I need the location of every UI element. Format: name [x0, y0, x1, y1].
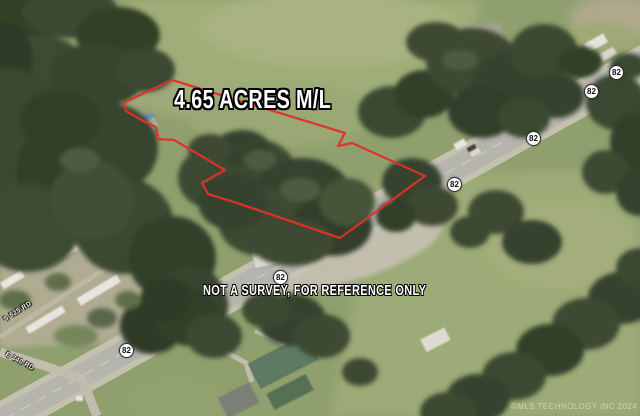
highway-route-number: 82 [529, 135, 538, 143]
highway-82-shield: 82 [447, 177, 462, 192]
highway-route-number: 82 [450, 181, 459, 189]
highway-route-number: 82 [122, 347, 131, 355]
highway-82-shield: 82 [526, 131, 541, 146]
highway-82-shield: 82 [609, 65, 624, 80]
highway-route-number: 82 [276, 274, 285, 282]
acreage-label: 4.65 ACRES M/L [174, 84, 331, 115]
aerial-listing-image: 82 82 82 82 82 82 S 525 RD E 340 RD 4.65… [0, 0, 640, 416]
aerial-photo-background [0, 0, 640, 416]
highway-route-number: 82 [587, 88, 596, 96]
disclaimer-text: NOT A SURVEY, FOR REFERENCE ONLY [203, 283, 426, 299]
highway-route-number: 82 [612, 69, 621, 77]
watermark-text: ©MLS TECHNOLOGY INC 2024 [511, 402, 637, 411]
highway-82-shield: 82 [119, 343, 134, 358]
highway-82-shield: 82 [584, 84, 599, 99]
